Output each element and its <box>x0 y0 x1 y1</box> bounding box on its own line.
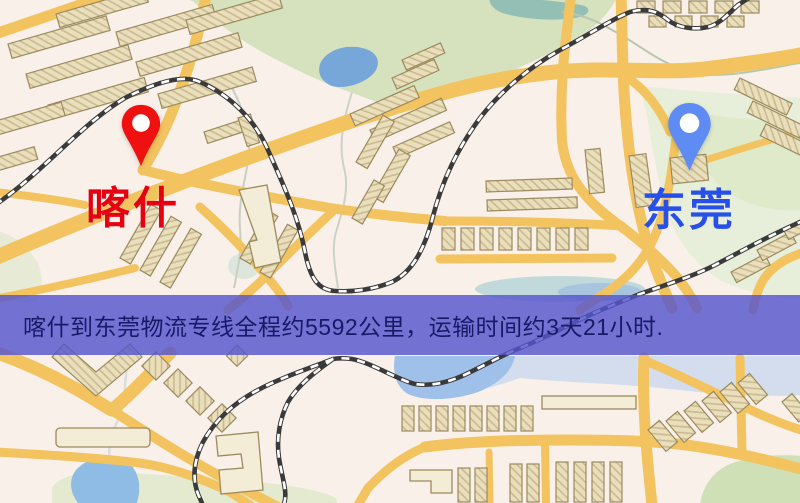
route-info-text: 喀什到东莞物流专线全程约5592公里，运输时间约3天21小时. <box>23 308 663 342</box>
route-info-banner: 喀什到东莞物流专线全程约5592公里，运输时间约3天21小时. <box>0 295 800 355</box>
destination-marker-icon[interactable] <box>664 100 715 174</box>
map-canvas[interactable] <box>0 0 800 503</box>
origin-label: 喀什 <box>86 172 180 236</box>
destination-label: 东莞 <box>642 174 736 238</box>
logistics-route-map: 喀什到东莞物流专线全程约5592公里，运输时间约3天21小时. 喀什 东莞 <box>0 0 800 503</box>
origin-marker-icon[interactable] <box>118 102 164 169</box>
